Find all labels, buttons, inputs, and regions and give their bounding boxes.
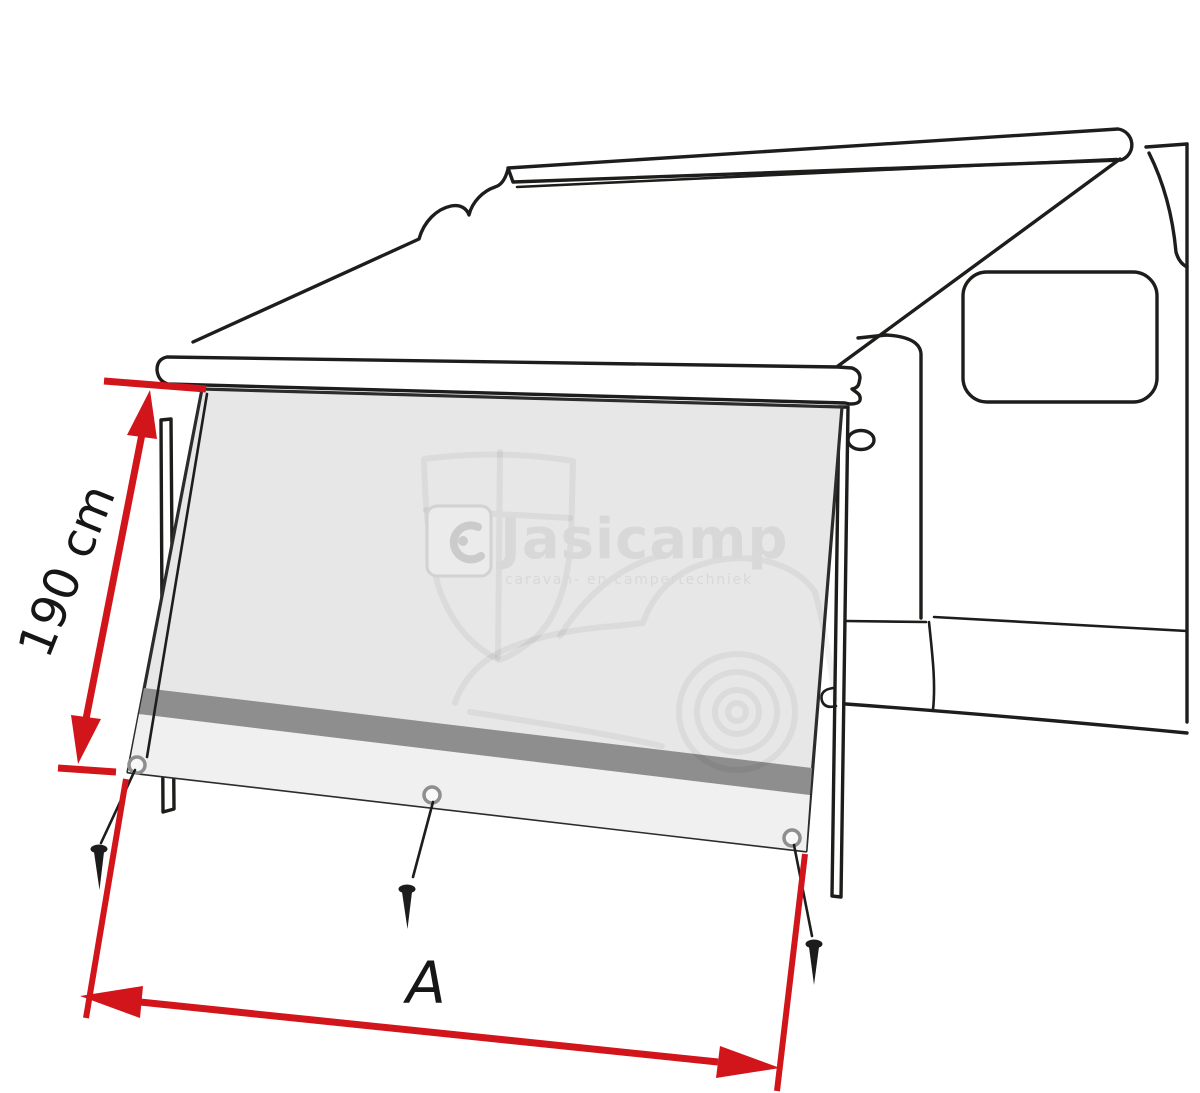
caravan-trim-line-left [846, 621, 926, 622]
peg-leader-middle [413, 802, 433, 877]
height-dimension-label: 190 cm [7, 477, 126, 665]
caravan-skirt-line [846, 704, 1187, 733]
tent-peg-left [91, 845, 108, 891]
grommet-left [129, 757, 145, 773]
tent-peg-right [806, 940, 823, 986]
height-arrowhead-top [127, 390, 157, 439]
caravan-door-outline [858, 335, 921, 618]
watermark-tagline: caravan- en campertechniek [505, 572, 753, 588]
canopy-scalloped-edge [193, 169, 508, 342]
height-dim-tick-bottom [58, 768, 116, 772]
watermark-brand-text: Jasicamp [496, 507, 789, 572]
awning-panel-diagram: Jasicamp caravan- en campertechniek [0, 0, 1200, 1093]
caravan-front-corner-curve [1149, 153, 1187, 267]
tent-peg-middle [399, 885, 416, 930]
caravan-roof-line [1146, 144, 1187, 147]
caravan-panel-divider [929, 622, 934, 710]
width-dimension-label: A [402, 949, 446, 1017]
canopy-side-edge [838, 159, 1120, 366]
width-arrowhead-right [716, 1046, 780, 1078]
door-handle-oval [848, 431, 874, 450]
width-dim-extension-left [86, 779, 126, 1018]
awning-roof [157, 129, 1132, 404]
front-panel [128, 389, 842, 851]
caravan-outline [846, 144, 1187, 733]
height-arrowhead-bottom [71, 715, 101, 764]
caravan-trim-line-right [934, 617, 1187, 631]
diagram-canvas: Jasicamp caravan- en campertechniek [0, 0, 1200, 1093]
width-dim-extension-right [777, 854, 805, 1091]
grommet-right [784, 830, 800, 846]
watermark-logo [427, 506, 491, 576]
grommet-middle [424, 787, 440, 803]
caravan-window [963, 272, 1157, 402]
